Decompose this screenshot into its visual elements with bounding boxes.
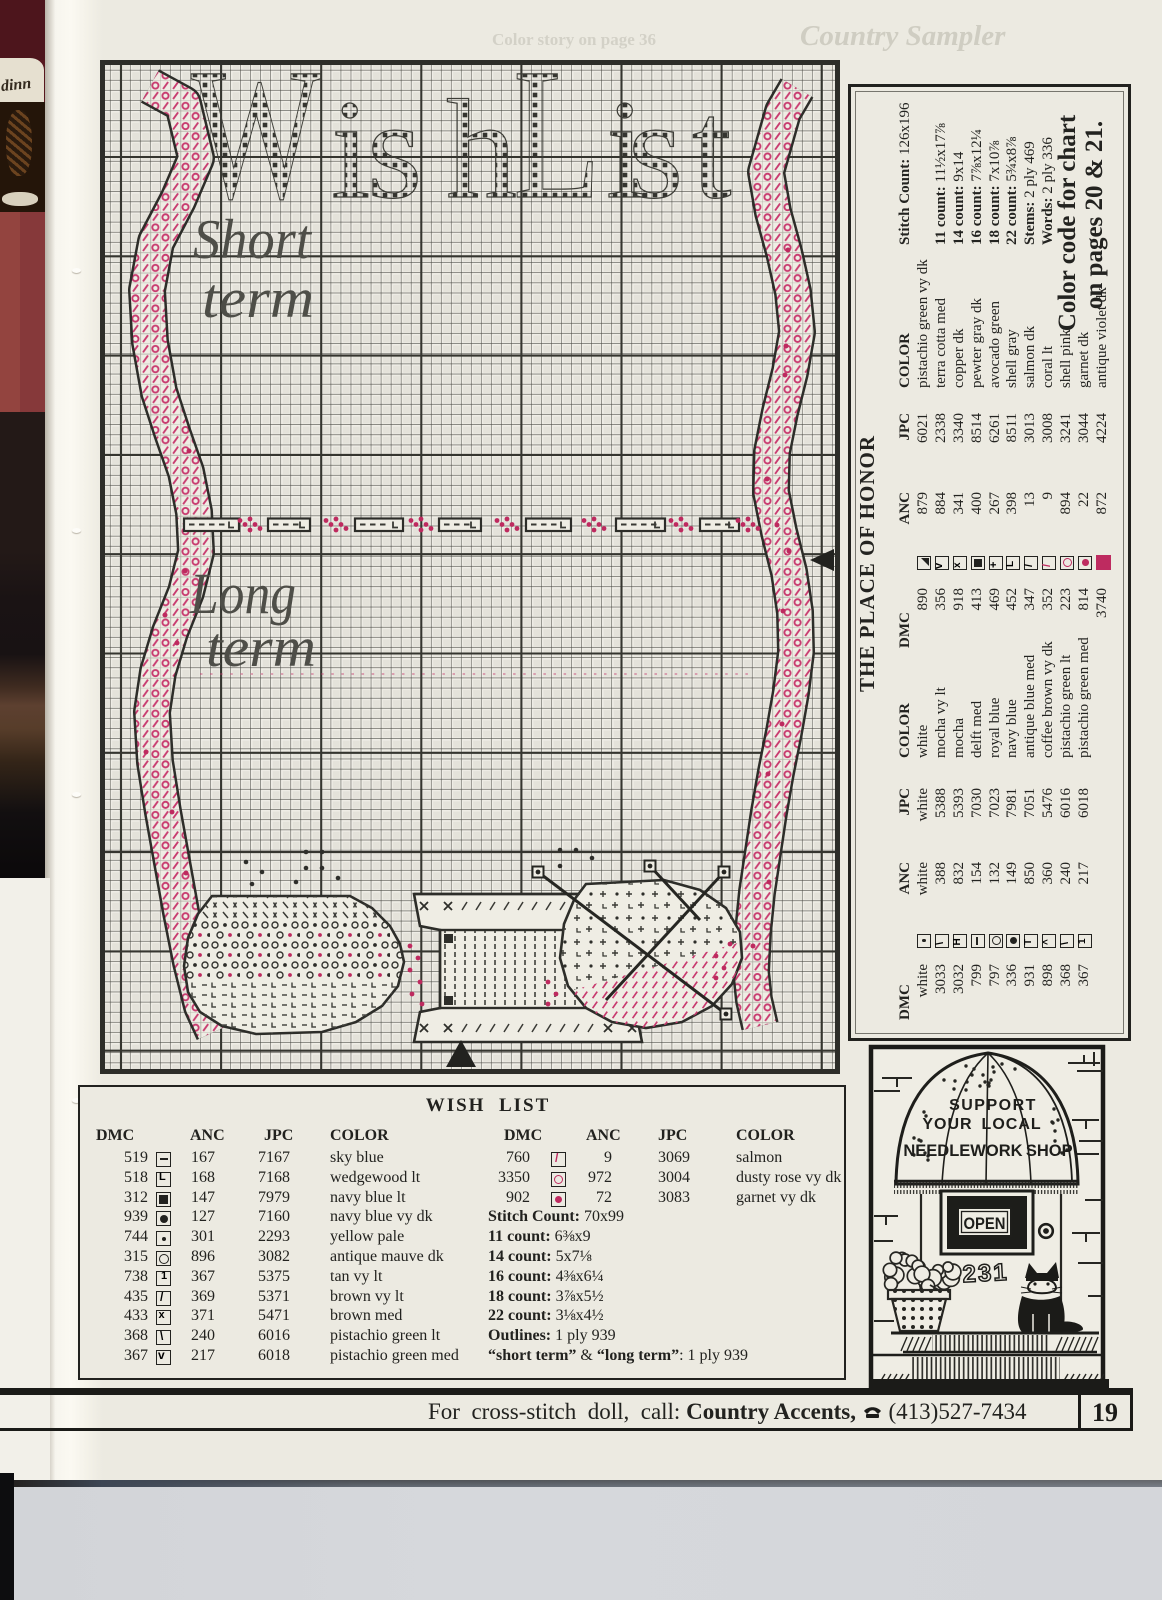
- svg-text:s: s: [628, 70, 683, 228]
- svg-text:YOUR LOCAL: YOUR LOCAL: [922, 1116, 1041, 1133]
- svg-text:term: term: [202, 268, 314, 330]
- svg-text:i: i: [331, 70, 370, 228]
- svg-text:term: term: [206, 617, 316, 679]
- svg-text:NEEDLEWORK SHOP: NEEDLEWORK SHOP: [903, 1142, 1072, 1160]
- svg-text:Short: Short: [193, 209, 312, 271]
- svg-text:h: h: [446, 70, 517, 228]
- svg-text:OPEN: OPEN: [964, 1214, 1006, 1233]
- svg-text:s: s: [367, 70, 422, 228]
- svg-text:t: t: [692, 70, 731, 228]
- svg-text:SUPPORT: SUPPORT: [949, 1097, 1037, 1114]
- svg-text:L: L: [513, 60, 601, 238]
- svg-text:231: 231: [962, 1259, 1009, 1288]
